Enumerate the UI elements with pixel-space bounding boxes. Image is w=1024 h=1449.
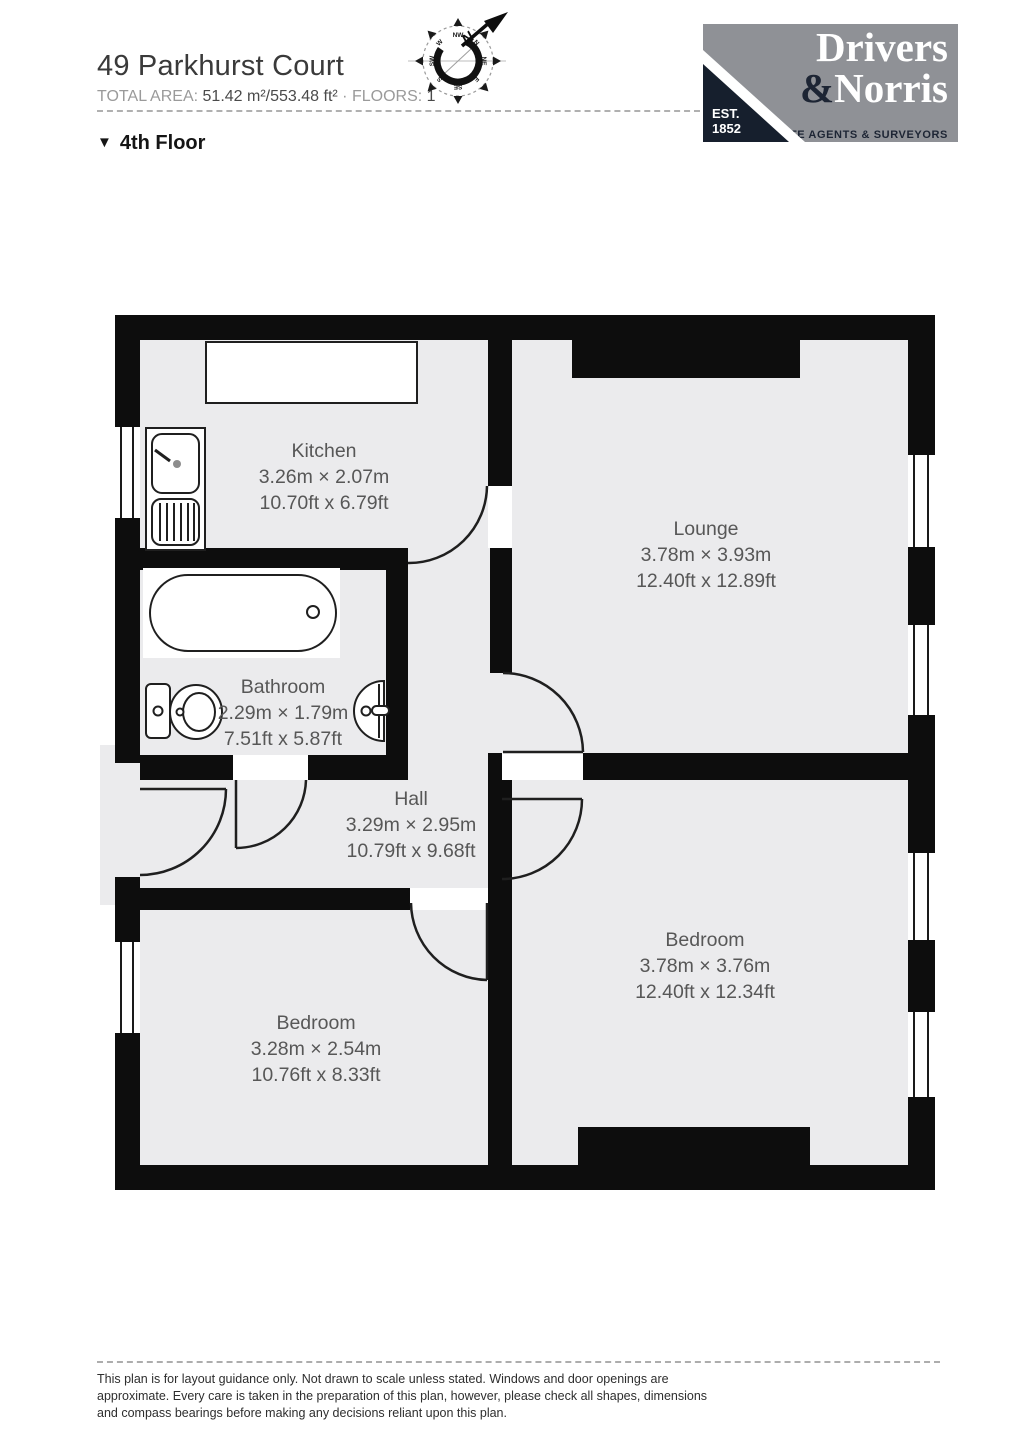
- room-label-hall: Hall 3.29m × 2.95m 10.79ft x 9.68ft: [346, 786, 477, 864]
- room-label-bathroom: Bathroom 2.29m × 1.79m 7.51ft x 5.87ft: [218, 674, 349, 752]
- wall-bathroom-bottom-right: [308, 755, 408, 780]
- disclaimer: This plan is for layout guidance only. N…: [97, 1371, 707, 1422]
- wall-bedroom-bedroom: [488, 780, 512, 1165]
- wall-bathroom-hall: [386, 548, 408, 780]
- room-dims-m: 2.29m × 1.79m: [218, 700, 349, 726]
- room-dims-ft: 10.79ft x 9.68ft: [346, 838, 477, 864]
- room-dims-m: 3.29m × 2.95m: [346, 812, 477, 838]
- wall-hall-lounge: [490, 548, 512, 673]
- wall-kitchen-lounge: [488, 340, 512, 486]
- kitchen-doorway: [488, 486, 512, 548]
- room-dims-ft: 10.70ft x 6.79ft: [259, 490, 390, 516]
- bedroom-right-window-1: [908, 853, 935, 940]
- room-label-kitchen: Kitchen 3.26m × 2.07m 10.70ft x 6.79ft: [259, 438, 390, 516]
- room-name: Bedroom: [251, 1010, 382, 1036]
- lounge-window-2: [908, 625, 935, 715]
- bedroom-chimney-breast: [578, 1127, 810, 1165]
- bedroom-left-doorway: [410, 888, 488, 910]
- entrance-doorway: [115, 763, 140, 877]
- room-name: Bathroom: [218, 674, 349, 700]
- basin-drain: [362, 707, 371, 716]
- toilet-hinge: [177, 709, 184, 716]
- room-dims-ft: 10.76ft x 8.33ft: [251, 1062, 382, 1088]
- kitchen-window: [115, 427, 140, 518]
- room-name: Kitchen: [259, 438, 390, 464]
- room-dims-ft: 12.40ft x 12.34ft: [635, 979, 775, 1005]
- entrance-recess: [100, 745, 116, 905]
- sink-drain: [173, 460, 181, 468]
- wall-kitchen-bathroom: [140, 548, 408, 570]
- room-label-bedroom-left: Bedroom 3.28m × 2.54m 10.76ft x 8.33ft: [251, 1010, 382, 1088]
- disclaimer-line: and compass bearings before making any d…: [97, 1405, 707, 1422]
- basin-faucet-icon: [372, 706, 389, 715]
- toilet-bowl-inner: [183, 693, 215, 731]
- room-name: Hall: [346, 786, 477, 812]
- wall-bathroom-bottom-left: [140, 755, 233, 780]
- lounge-window-1: [908, 455, 935, 547]
- wall-hall-bedroom: [140, 888, 410, 910]
- wall-top: [115, 315, 935, 340]
- room-dims-m: 3.28m × 2.54m: [251, 1036, 382, 1062]
- disclaimer-line: approximate. Every care is taken in the …: [97, 1388, 707, 1405]
- room-dims-m: 3.78m × 3.93m: [636, 542, 776, 568]
- room-dims-m: 3.78m × 3.76m: [635, 953, 775, 979]
- bedroom-right-window-2: [908, 1012, 935, 1097]
- room-dims-ft: 12.40ft x 12.89ft: [636, 568, 776, 594]
- room-dims-ft: 7.51ft x 5.87ft: [218, 726, 349, 752]
- bath-drain: [307, 606, 319, 618]
- room-name: Lounge: [636, 516, 776, 542]
- room-dims-m: 3.26m × 2.07m: [259, 464, 390, 490]
- wall-bottom: [115, 1165, 935, 1190]
- footer-divider: [97, 1361, 940, 1363]
- bedroom-right-doorway: [502, 753, 583, 780]
- room-label-lounge: Lounge 3.78m × 3.93m 12.40ft x 12.89ft: [636, 516, 776, 594]
- kitchen-counter: [206, 342, 417, 403]
- disclaimer-line: This plan is for layout guidance only. N…: [97, 1371, 707, 1388]
- room-name: Bedroom: [635, 927, 775, 953]
- bathroom-doorway: [233, 755, 308, 780]
- lounge-chimney-breast: [572, 340, 800, 378]
- room-label-bedroom-right: Bedroom 3.78m × 3.76m 12.40ft x 12.34ft: [635, 927, 775, 1005]
- toilet-button: [154, 707, 163, 716]
- bedroom-left-window: [115, 942, 140, 1033]
- floor-plan: [0, 0, 1024, 1449]
